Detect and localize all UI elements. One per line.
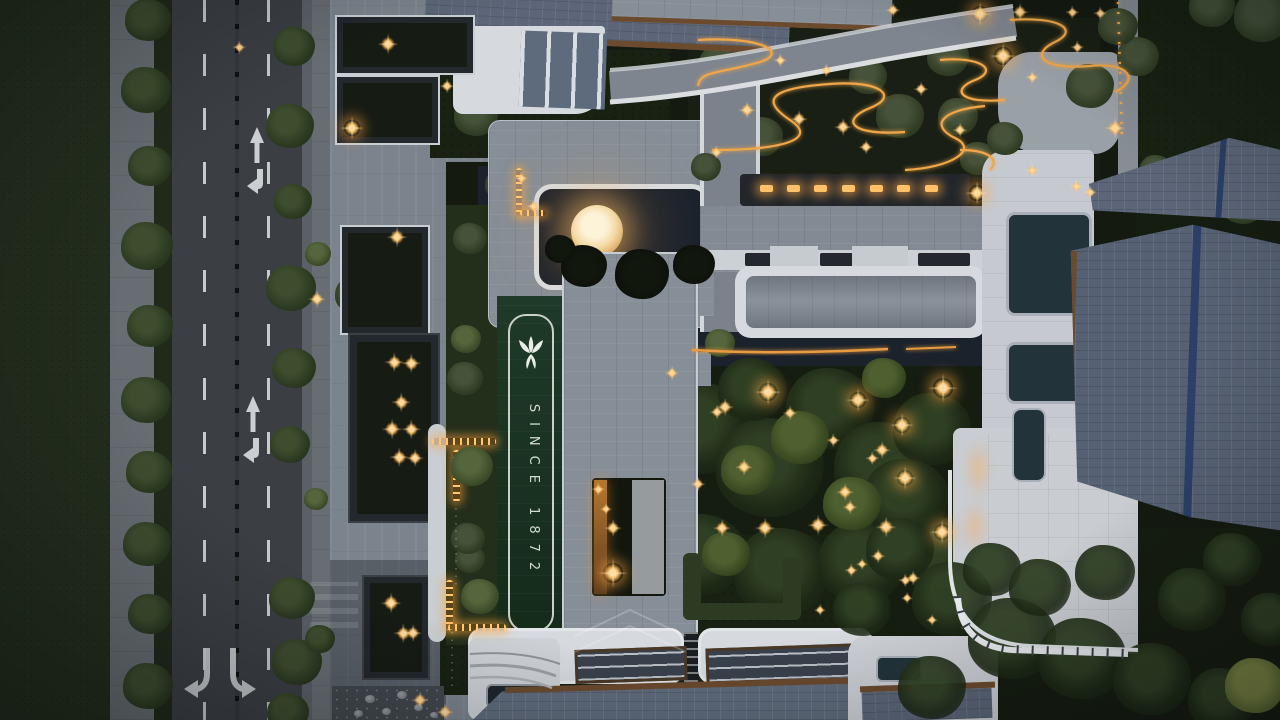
garden-light [839, 486, 851, 498]
garden-light [785, 408, 795, 418]
garden-light [901, 576, 910, 585]
garden-light [1028, 73, 1037, 82]
garden-light [858, 560, 866, 568]
garden-light [1096, 9, 1105, 18]
garden-light [442, 81, 452, 91]
garden-light [928, 616, 936, 624]
wall-lamp [897, 185, 910, 192]
garden-light [894, 417, 910, 433]
garden-light [385, 422, 399, 436]
garden-light [738, 461, 750, 473]
garden-light [344, 120, 360, 136]
garden-light [1086, 188, 1095, 197]
garden-light [1072, 182, 1081, 191]
garden-light [439, 706, 451, 718]
garden-light [395, 396, 408, 409]
garden-light [811, 518, 825, 532]
garden-light [897, 470, 913, 486]
light-layer [0, 0, 1280, 720]
garden-light [607, 522, 619, 534]
garden-light [741, 104, 753, 116]
garden-light [405, 357, 418, 370]
garden-light [994, 47, 1012, 65]
garden-light [873, 551, 883, 561]
garden-light [594, 485, 603, 494]
garden-light [850, 392, 866, 408]
garden-light [969, 185, 985, 201]
wall-lamp [925, 185, 938, 192]
garden-light [393, 451, 406, 464]
garden-light [311, 293, 323, 305]
wall-lamp [760, 185, 773, 192]
garden-light [934, 524, 950, 540]
garden-light [972, 6, 988, 22]
garden-light [822, 66, 831, 75]
garden-light [529, 202, 538, 211]
garden-light [1108, 121, 1122, 135]
garden-light [916, 84, 926, 94]
wall-lamp [787, 185, 800, 192]
garden-light [758, 521, 772, 535]
garden-light [1014, 6, 1026, 18]
garden-light [829, 436, 838, 445]
garden-light [816, 606, 824, 614]
wall-lamp [814, 185, 827, 192]
garden-light [908, 573, 918, 583]
garden-light [409, 452, 421, 464]
garden-light [861, 142, 871, 152]
garden-light [603, 563, 623, 583]
garden-light [414, 694, 426, 706]
garden-light [712, 148, 721, 157]
garden-light [388, 356, 401, 369]
garden-light [517, 174, 526, 183]
garden-light [693, 479, 703, 489]
garden-light [759, 383, 777, 401]
wall-lamp [870, 185, 883, 192]
aerial-photo-scene: SINCE 1872 [0, 0, 1280, 720]
garden-light [1073, 43, 1082, 52]
garden-light [888, 5, 898, 15]
garden-light [405, 423, 418, 436]
garden-light [235, 43, 244, 52]
garden-light [667, 368, 677, 378]
garden-light [903, 594, 911, 602]
garden-light [381, 37, 395, 51]
garden-light [1068, 8, 1077, 17]
wall-lamp [842, 185, 855, 192]
garden-light [776, 56, 785, 65]
garden-light [933, 378, 953, 398]
garden-light [716, 522, 728, 534]
garden-light [845, 502, 855, 512]
garden-light [868, 454, 877, 463]
garden-light [847, 566, 856, 575]
garden-light [407, 627, 419, 639]
garden-light [837, 121, 849, 133]
garden-light [1028, 166, 1037, 175]
garden-light [955, 125, 965, 135]
garden-light [712, 407, 722, 417]
garden-light [876, 444, 888, 456]
garden-light [390, 230, 404, 244]
garden-light [793, 113, 805, 125]
garden-light [879, 520, 893, 534]
garden-light [602, 505, 610, 513]
garden-light [384, 596, 398, 610]
